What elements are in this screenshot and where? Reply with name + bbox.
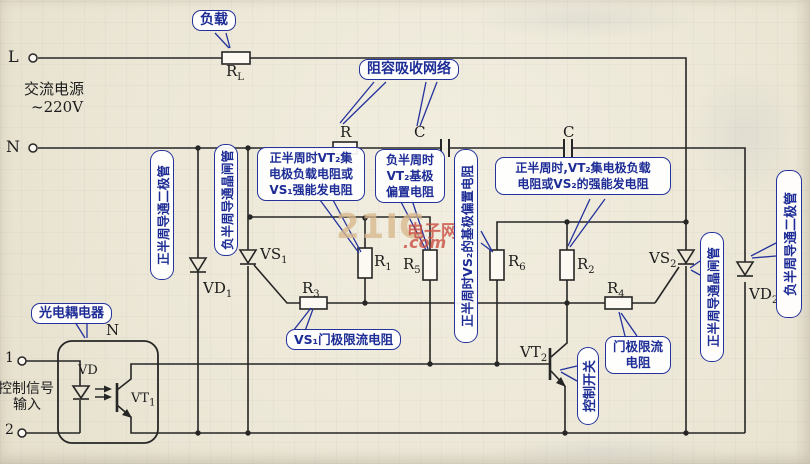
terminal-1 bbox=[18, 357, 26, 365]
callout-r4-note: 门极限流 电阻 bbox=[605, 336, 671, 374]
callout-r2-note: 正半周时,VT₂集电极负载 电阻或VS₂的强能发电阻 bbox=[495, 157, 671, 195]
callout-r6-note: 正半周时VS₂的基极偏置电阻 bbox=[454, 149, 478, 343]
label-rl: RL bbox=[226, 63, 244, 80]
diode-vd1 bbox=[190, 258, 206, 272]
circuit-schematic-page: 21IC 电子网 .com L N 交流电源 ~220V 1 2 控制信号 输入… bbox=[0, 0, 810, 464]
label-snubber-c1: C bbox=[414, 124, 425, 141]
label-vd1: VD1 bbox=[203, 280, 232, 297]
label-vs2: VS2 bbox=[649, 250, 676, 267]
label-n: N bbox=[6, 138, 20, 156]
label-r6: R6 bbox=[508, 253, 526, 270]
label-ac-voltage: ~220V bbox=[31, 99, 83, 116]
diode-vd2 bbox=[737, 262, 753, 276]
resistor-r6 bbox=[490, 250, 504, 280]
label-input-2: 2 bbox=[5, 423, 14, 438]
callout-pos-diode: 正半周导通二极管 bbox=[150, 150, 174, 280]
wires bbox=[26, 58, 745, 433]
label-vt1: VT1 bbox=[131, 392, 155, 406]
terminal-l bbox=[29, 54, 37, 62]
label-input-1: 1 bbox=[5, 351, 14, 366]
led-vd bbox=[73, 386, 89, 399]
callout-r2-line1: 正半周时,VT₂集电极负载 bbox=[500, 160, 666, 176]
label-opto-n: N bbox=[106, 322, 119, 339]
arrowheads bbox=[104, 377, 566, 418]
resistor-r1 bbox=[358, 248, 372, 278]
callout-neg-scr: 负半周导通晶闸管 bbox=[214, 144, 238, 256]
callout-r4-line2: 电阻 bbox=[610, 355, 666, 371]
callout-r3-note: VS₁门极限流电阻 bbox=[286, 329, 401, 350]
label-r4: R4 bbox=[607, 280, 625, 297]
light-arrow-2 bbox=[104, 394, 112, 401]
label-vd-led: VD bbox=[78, 364, 98, 378]
label-vs1: VS1 bbox=[260, 246, 287, 263]
callout-r4-line1: 门极限流 bbox=[610, 339, 666, 355]
callout-switch: 控制开关 bbox=[577, 347, 599, 425]
light-arrow-1 bbox=[104, 386, 112, 393]
callout-r2-line2: 电阻或VS₂的强能发电阻 bbox=[500, 176, 666, 192]
resistor-r5 bbox=[423, 250, 437, 280]
callout-pos-scr: 正半周导通晶闸管 bbox=[700, 232, 724, 362]
callout-r1-note: 正半周时VT₂集 电极负载电阻或 VS₁强能发电阻 bbox=[257, 147, 365, 201]
callout-r5-line3: 偏置电阻 bbox=[380, 184, 440, 200]
resistor-r2 bbox=[560, 250, 574, 280]
transistor-bars bbox=[117, 348, 550, 412]
label-vt2: VT2 bbox=[520, 344, 547, 361]
callout-r1-line1: 正半周时VT₂集 bbox=[262, 150, 360, 166]
thyristor-vs1 bbox=[240, 250, 256, 264]
callout-r5-line1: 负半周时 bbox=[380, 152, 440, 168]
callout-neg-diode: 负半周导通二极管 bbox=[776, 170, 802, 318]
callout-tails bbox=[75, 33, 776, 381]
label-r3: R3 bbox=[302, 280, 320, 297]
terminal-2 bbox=[18, 429, 26, 437]
callout-r1-line2: 电极负载电阻或 bbox=[262, 166, 360, 182]
capacitor-c2 bbox=[564, 139, 572, 157]
label-vd2: VD2 bbox=[749, 286, 778, 303]
label-r5: R5 bbox=[403, 256, 421, 273]
label-ac-source: 交流电源 bbox=[24, 81, 84, 98]
label-control-input: 输入 bbox=[13, 398, 41, 413]
label-control-signal: 控制信号 bbox=[0, 382, 54, 397]
label-snubber-r: R bbox=[340, 124, 351, 141]
callout-r5-line2: VT₂基极 bbox=[380, 168, 440, 184]
label-r2: R2 bbox=[577, 256, 595, 273]
callout-r5-note: 负半周时 VT₂基极 偏置电阻 bbox=[375, 149, 445, 203]
label-snubber-c2: C bbox=[563, 124, 574, 141]
label-l: L bbox=[8, 48, 19, 66]
thyristor-vs2 bbox=[678, 250, 694, 264]
terminal-n bbox=[29, 144, 37, 152]
callout-r1-line3: VS₁强能发电阻 bbox=[262, 182, 360, 198]
callout-load: 负载 bbox=[192, 10, 236, 31]
label-r1: R1 bbox=[374, 253, 392, 270]
callout-opto: 光电耦电器 bbox=[31, 303, 112, 324]
callout-snubber: 阻容吸收网络 bbox=[359, 59, 459, 80]
